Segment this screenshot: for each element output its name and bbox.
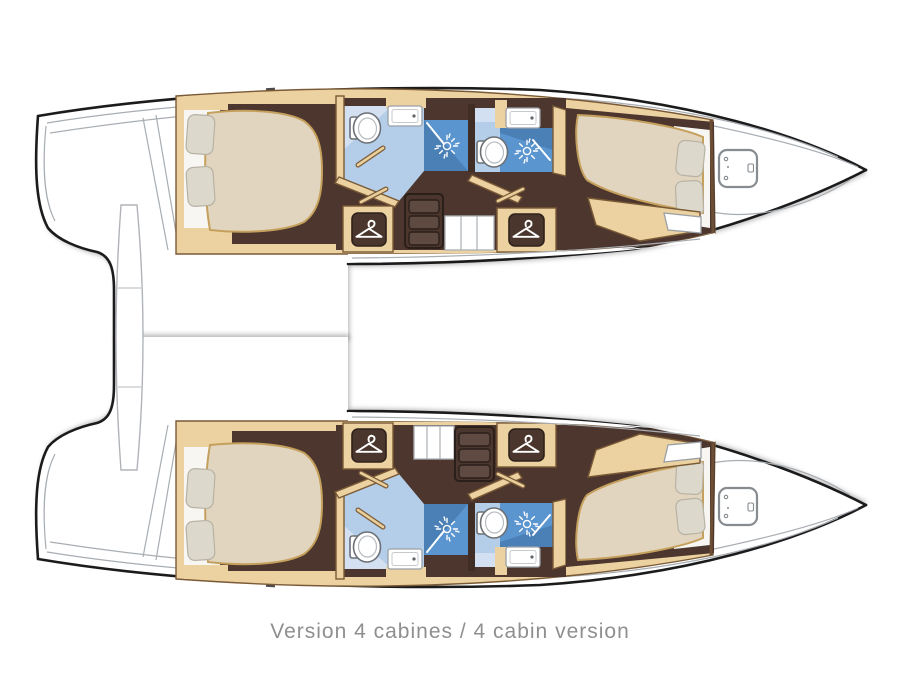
version-caption: Version 4 cabines / 4 cabin version xyxy=(0,620,900,644)
lockers xyxy=(414,426,454,459)
aft-platform-bar xyxy=(116,205,143,470)
top-hull xyxy=(36,88,866,338)
floorplan-stage: Version 4 cabines / 4 cabin version xyxy=(0,0,900,675)
catamaran-floorplan xyxy=(0,0,900,675)
lockers xyxy=(445,216,494,250)
bottom-hull xyxy=(36,337,866,587)
